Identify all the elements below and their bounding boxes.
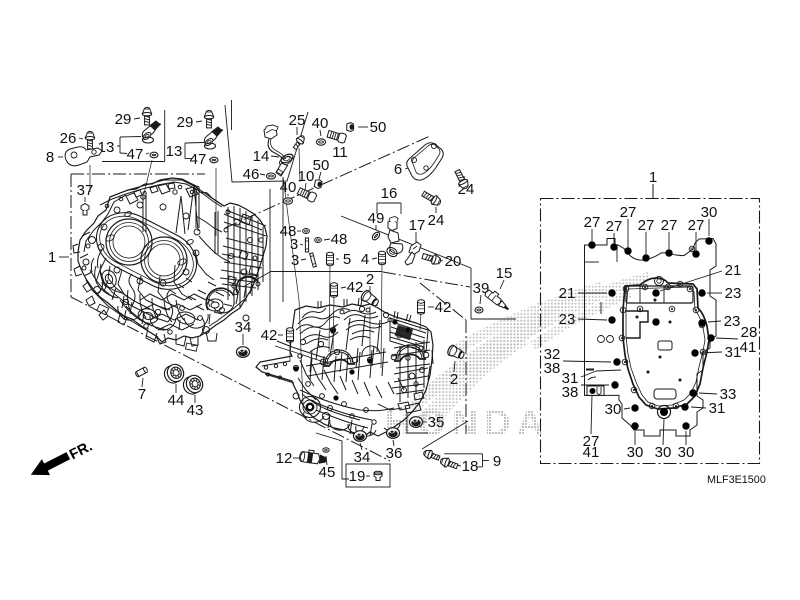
- svg-text:27: 27: [620, 204, 637, 221]
- svg-text:42: 42: [261, 327, 278, 344]
- svg-text:47: 47: [127, 146, 144, 163]
- svg-text:9: 9: [493, 453, 501, 470]
- svg-text:31: 31: [709, 400, 726, 417]
- svg-text:36: 36: [386, 445, 403, 462]
- svg-text:12: 12: [276, 450, 293, 467]
- svg-text:42: 42: [435, 299, 452, 316]
- svg-text:15: 15: [496, 265, 513, 282]
- svg-text:34: 34: [235, 319, 252, 336]
- svg-text:2: 2: [450, 371, 458, 388]
- svg-text:40: 40: [312, 115, 329, 132]
- svg-text:27: 27: [584, 214, 601, 231]
- svg-text:29: 29: [177, 114, 194, 131]
- svg-text:1: 1: [48, 249, 56, 266]
- svg-text:49: 49: [368, 210, 385, 227]
- svg-text:3: 3: [290, 236, 298, 253]
- svg-text:50: 50: [370, 119, 387, 136]
- svg-text:25: 25: [289, 112, 306, 129]
- svg-text:45: 45: [319, 464, 336, 481]
- svg-text:41: 41: [583, 444, 600, 461]
- svg-text:34: 34: [354, 449, 371, 466]
- svg-text:38: 38: [562, 384, 579, 401]
- svg-text:MLF3E1500: MLF3E1500: [707, 474, 766, 486]
- svg-text:17: 17: [409, 217, 426, 234]
- svg-text:5: 5: [343, 251, 351, 268]
- svg-text:42: 42: [347, 279, 364, 296]
- svg-text:47: 47: [190, 151, 207, 168]
- svg-text:41: 41: [740, 339, 757, 356]
- svg-text:3: 3: [291, 252, 299, 269]
- svg-text:30: 30: [627, 444, 644, 461]
- svg-text:48: 48: [331, 231, 348, 248]
- svg-text:27: 27: [661, 217, 678, 234]
- svg-text:27: 27: [638, 217, 655, 234]
- svg-text:6: 6: [394, 161, 402, 178]
- svg-text:37: 37: [77, 182, 94, 199]
- svg-text:30: 30: [605, 401, 622, 418]
- svg-text:7: 7: [138, 386, 146, 403]
- svg-text:16: 16: [381, 185, 398, 202]
- svg-text:23: 23: [724, 313, 741, 330]
- svg-text:11: 11: [332, 144, 348, 161]
- svg-text:14: 14: [253, 148, 270, 165]
- svg-text:10: 10: [298, 168, 315, 185]
- svg-text:31: 31: [725, 344, 742, 361]
- svg-text:38: 38: [544, 360, 561, 377]
- svg-text:50: 50: [313, 157, 330, 174]
- svg-text:2: 2: [366, 271, 374, 288]
- svg-text:39: 39: [473, 280, 490, 297]
- svg-text:20: 20: [445, 253, 462, 270]
- svg-text:24: 24: [428, 212, 445, 229]
- svg-text:44: 44: [168, 392, 185, 409]
- svg-text:18: 18: [462, 458, 479, 475]
- svg-text:40: 40: [280, 179, 297, 196]
- svg-text:13: 13: [166, 143, 183, 160]
- svg-text:4: 4: [361, 251, 369, 268]
- svg-text:29: 29: [115, 111, 132, 128]
- svg-text:21: 21: [559, 285, 576, 302]
- svg-text:8: 8: [46, 149, 54, 166]
- svg-text:19: 19: [349, 468, 366, 485]
- svg-text:30: 30: [678, 444, 695, 461]
- svg-text:46: 46: [243, 166, 260, 183]
- svg-text:35: 35: [428, 414, 445, 431]
- svg-text:21: 21: [725, 262, 742, 279]
- svg-text:1: 1: [649, 169, 657, 186]
- svg-text:23: 23: [725, 285, 742, 302]
- svg-text:26: 26: [60, 130, 77, 147]
- svg-text:30: 30: [701, 204, 718, 221]
- svg-text:43: 43: [187, 402, 204, 419]
- svg-text:23: 23: [559, 311, 576, 328]
- svg-text:30: 30: [655, 444, 672, 461]
